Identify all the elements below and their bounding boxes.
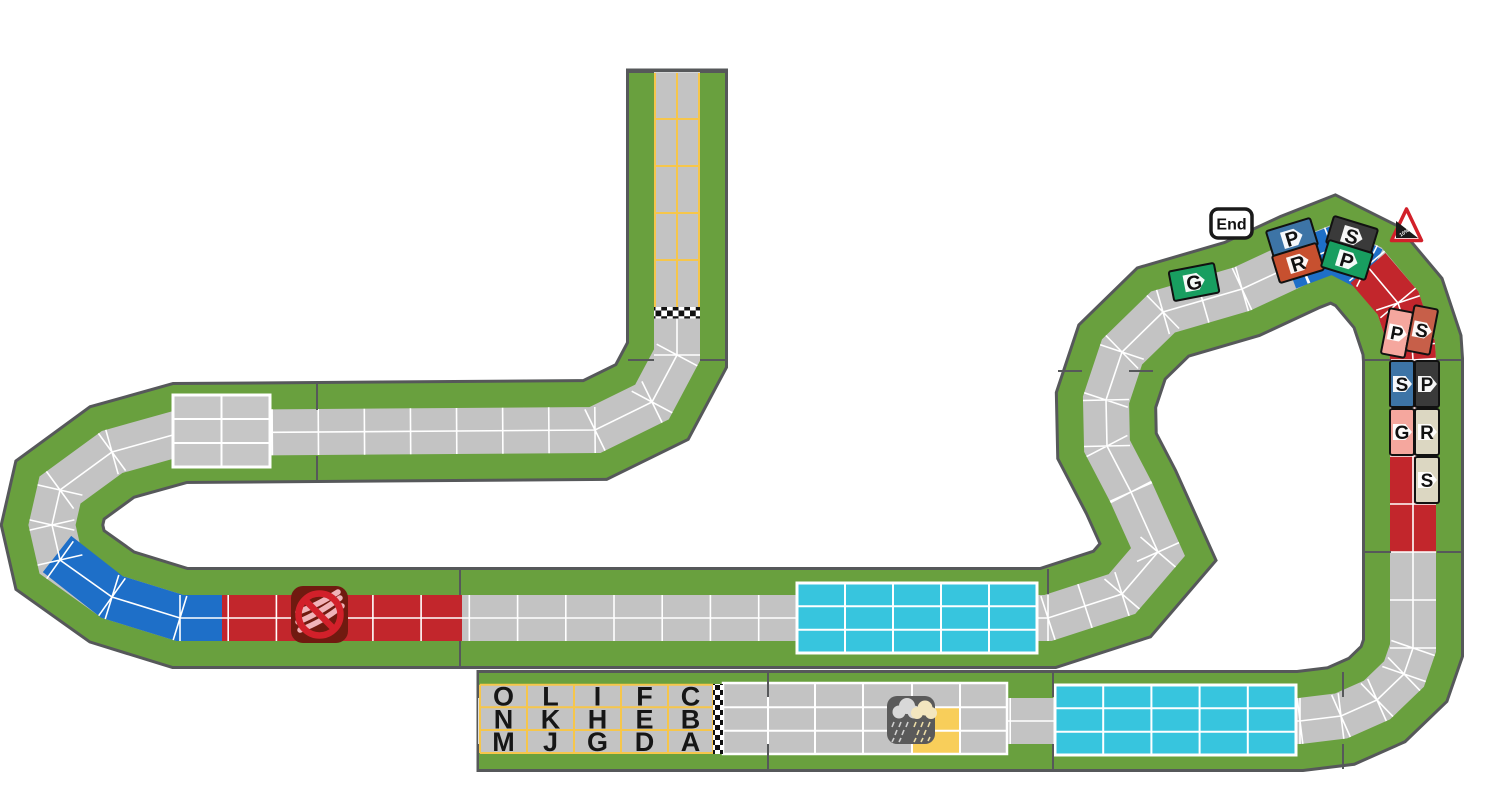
rider-token-p-black[interactable]: P (1415, 361, 1439, 407)
start-line-checker (713, 684, 723, 754)
wide-zone-gray (173, 395, 270, 467)
finish-straight-grid (654, 73, 700, 307)
grid-letter: J (543, 727, 558, 757)
rider-token-s-blue[interactable]: S (1390, 361, 1414, 407)
three-lane-zone (723, 683, 1007, 754)
rain-weather-icon (887, 696, 937, 744)
svg-text:R: R (1420, 423, 1434, 444)
rider-token-r-cream[interactable]: R (1415, 409, 1439, 455)
finish-line-checker (654, 307, 700, 319)
no-drafting-icon (291, 586, 348, 643)
cyan-zone-lower-straight (1055, 685, 1296, 755)
rider-token-g-pink[interactable]: G (1390, 409, 1414, 455)
grid-letter: M (492, 727, 515, 757)
grid-letter: D (635, 727, 655, 757)
svg-text:G: G (1395, 423, 1410, 444)
svg-text:S: S (1421, 471, 1434, 492)
steep-descent-warning-icon: 10% (1392, 209, 1422, 241)
svg-text:P: P (1421, 375, 1434, 396)
track-map: O L I F C N K H E B M J G D A (0, 0, 1487, 792)
grid-letter: G (587, 727, 608, 757)
cyan-zone-bottom-straight (797, 583, 1037, 653)
start-grid: O L I F C N K H E B M J G D A (480, 682, 713, 758)
end-badge-label: End (1216, 217, 1246, 234)
rider-token-s-cream[interactable]: S (1415, 457, 1439, 503)
end-badge: End (1211, 209, 1252, 238)
grid-letter: A (681, 727, 701, 757)
svg-text:S: S (1396, 375, 1409, 396)
